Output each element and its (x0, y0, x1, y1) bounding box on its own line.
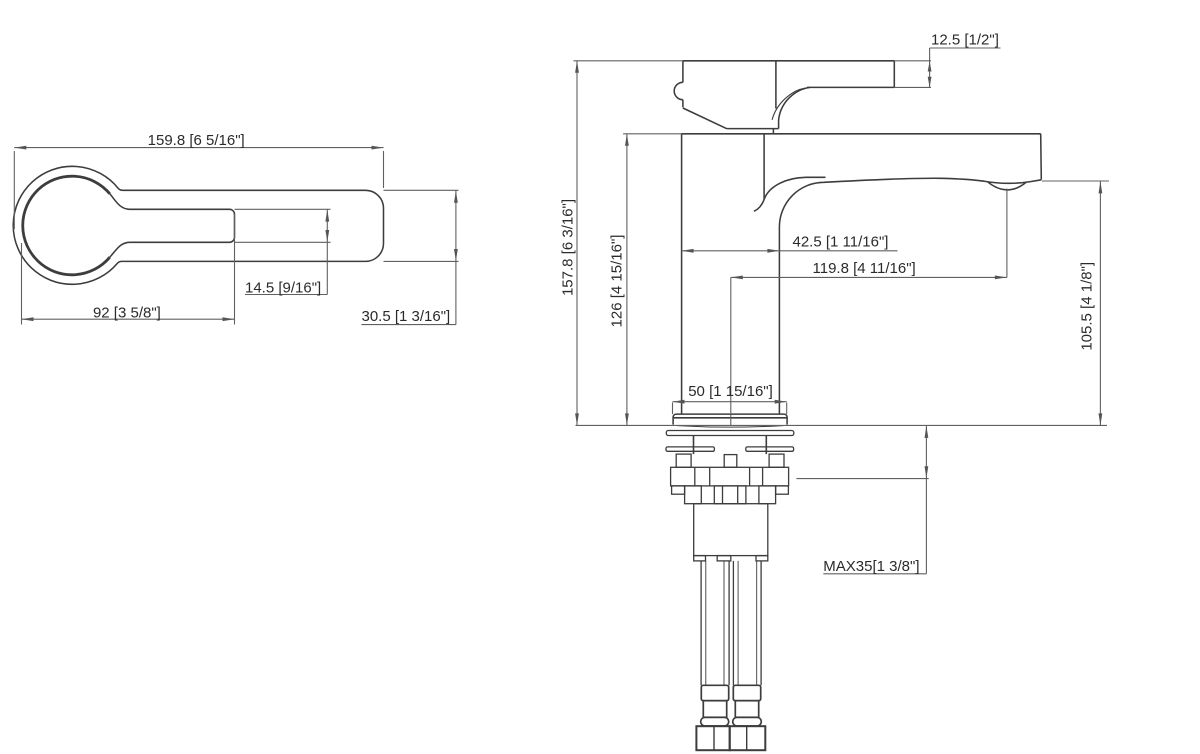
svg-text:105.5 [4 1/8"]: 105.5 [4 1/8"] (1079, 262, 1096, 351)
svg-text:157.8 [6 3/16"]: 157.8 [6 3/16"] (560, 199, 577, 296)
svg-text:MAX35[1 3/8"]: MAX35[1 3/8"] (823, 558, 919, 575)
svg-text:50 [1 15/16"]: 50 [1 15/16"] (688, 383, 773, 400)
svg-text:12.5 [1/2"]: 12.5 [1/2"] (931, 32, 999, 49)
svg-text:92 [3 5/8"]: 92 [3 5/8"] (93, 305, 161, 322)
svg-text:119.8 [4 11/16"]: 119.8 [4 11/16"] (813, 260, 916, 277)
svg-text:30.5 [1 3/16"]: 30.5 [1 3/16"] (362, 308, 451, 325)
svg-text:159.8 [6 5/16"]: 159.8 [6 5/16"] (148, 132, 245, 149)
svg-text:126 [4 15/16"]: 126 [4 15/16"] (609, 235, 626, 328)
svg-text:14.5 [9/16"]: 14.5 [9/16"] (245, 279, 321, 296)
svg-text:42.5 [1 11/16"]: 42.5 [1 11/16"] (793, 233, 889, 250)
